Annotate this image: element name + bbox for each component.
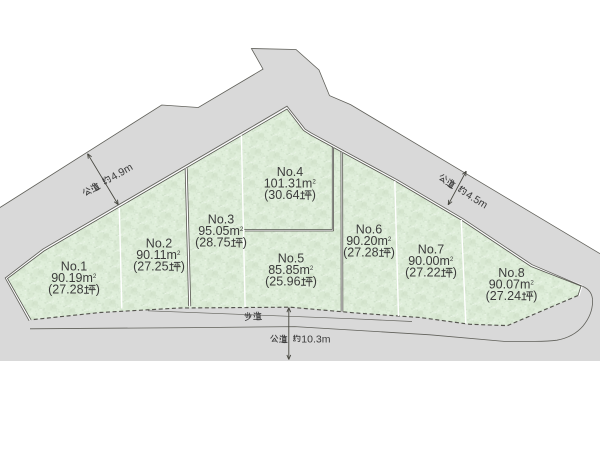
svg-text:(27.22: (27.22 [405, 266, 440, 280]
svg-text:(27.24: (27.24 [486, 289, 521, 303]
svg-text:): ) [243, 236, 247, 250]
svg-text:(28.75: (28.75 [195, 236, 230, 250]
svg-text:): ) [391, 246, 395, 260]
svg-text:): ) [181, 260, 185, 274]
svg-text:): ) [453, 266, 457, 280]
svg-text:(27.28: (27.28 [343, 246, 378, 260]
svg-text:): ) [96, 283, 100, 297]
svg-text:(27.25: (27.25 [133, 260, 168, 274]
svg-text:): ) [313, 275, 317, 289]
svg-text:(27.28: (27.28 [48, 283, 83, 297]
svg-text:(30.64: (30.64 [264, 188, 299, 202]
svg-text:(25.96: (25.96 [265, 275, 300, 289]
svg-text:10.3m: 10.3m [301, 333, 330, 345]
svg-text:): ) [533, 289, 537, 303]
svg-text:): ) [312, 188, 316, 202]
